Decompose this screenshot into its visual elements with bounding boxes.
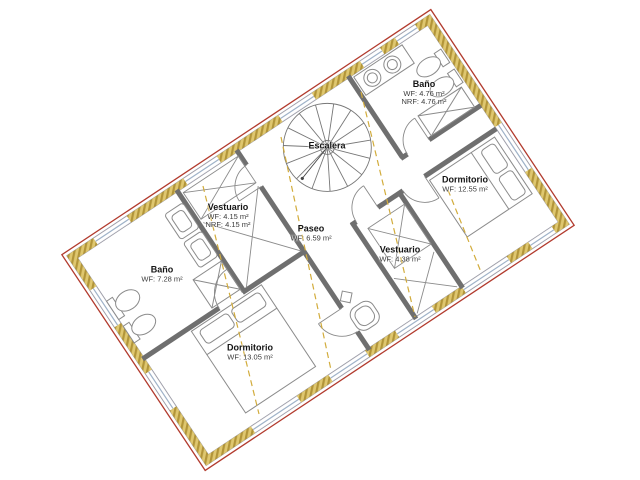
floor-plan-canvas: Vestuario WF: 4.15 m² NRF: 4.15 m² Baño … bbox=[0, 0, 640, 480]
building-outline bbox=[62, 10, 574, 471]
floor-plan-drawing bbox=[0, 0, 640, 480]
